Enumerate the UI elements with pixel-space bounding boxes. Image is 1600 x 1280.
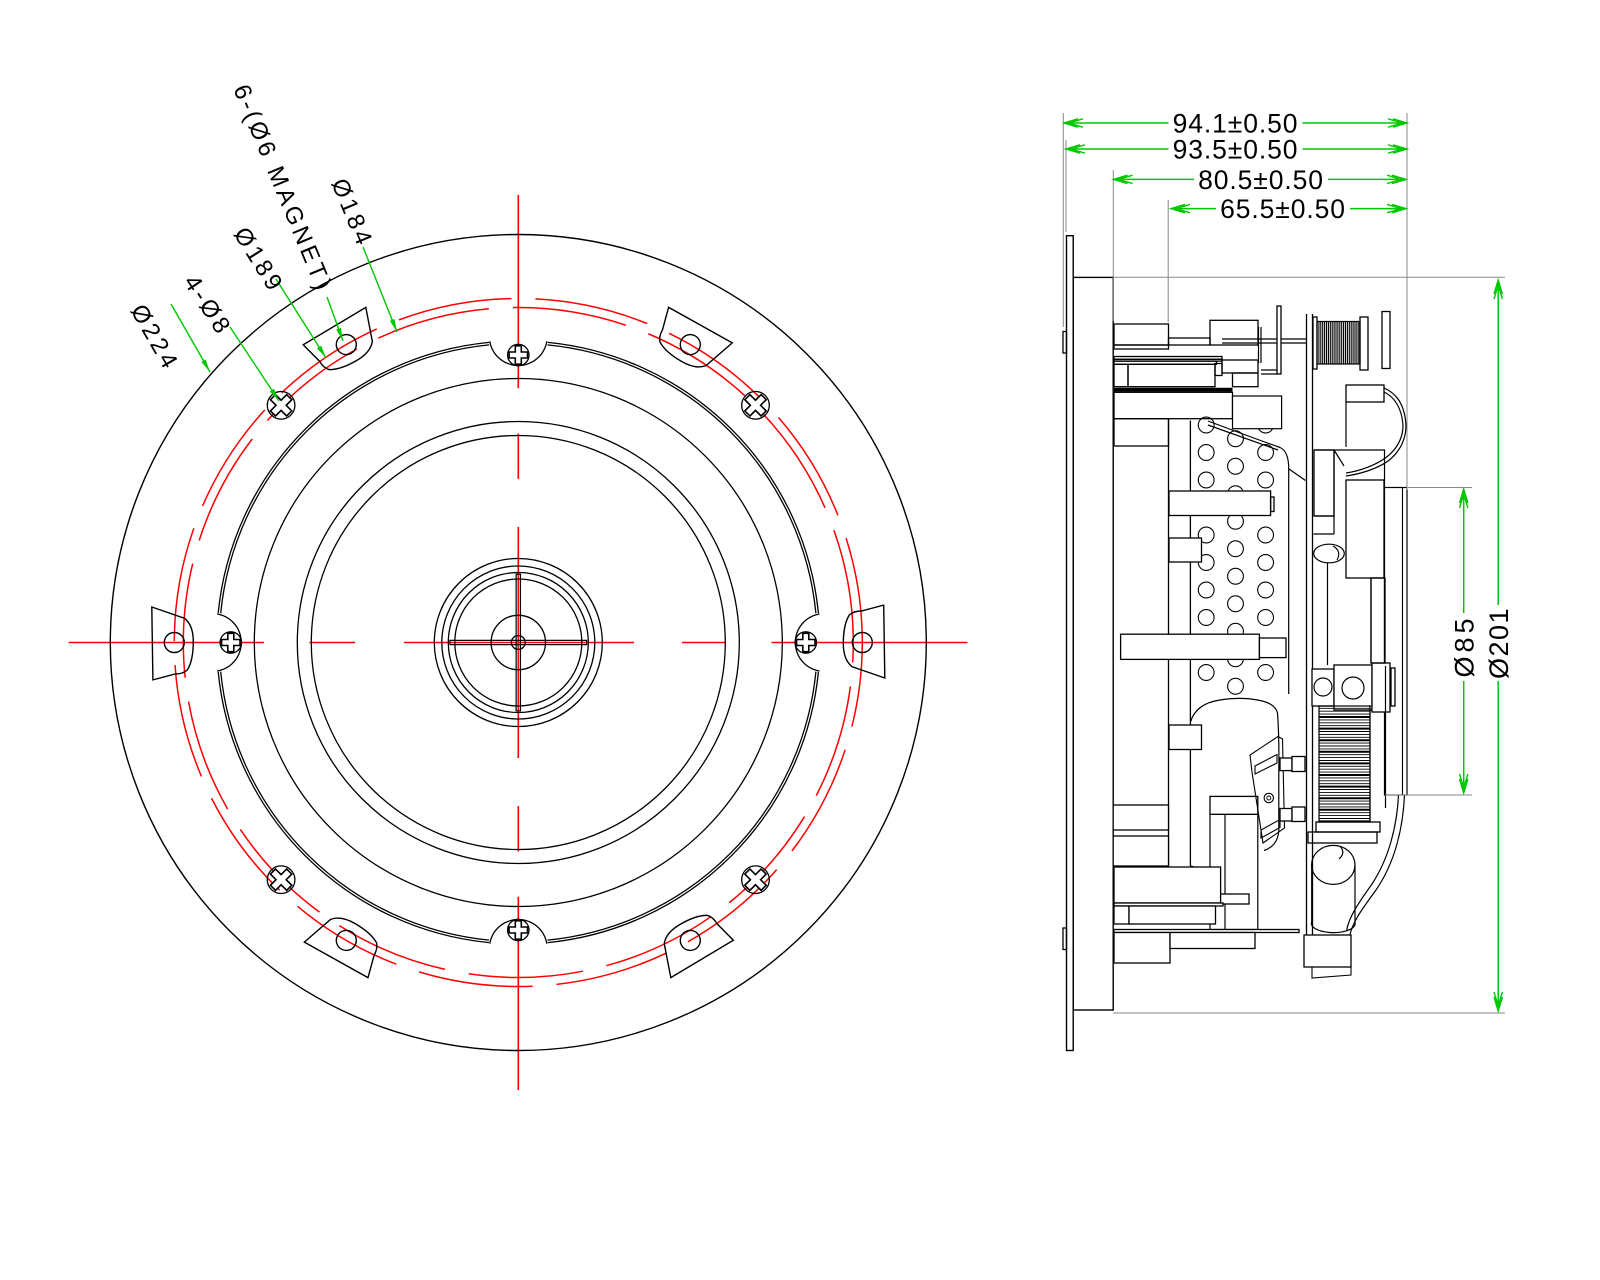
svg-text:Ø85: Ø85 — [1450, 614, 1480, 677]
svg-text:80.5±0.50: 80.5±0.50 — [1198, 165, 1324, 195]
svg-text:93.5±0.50: 93.5±0.50 — [1173, 135, 1299, 165]
svg-text:65.5±0.50: 65.5±0.50 — [1220, 194, 1346, 224]
svg-text:Ø201: Ø201 — [1484, 607, 1514, 679]
